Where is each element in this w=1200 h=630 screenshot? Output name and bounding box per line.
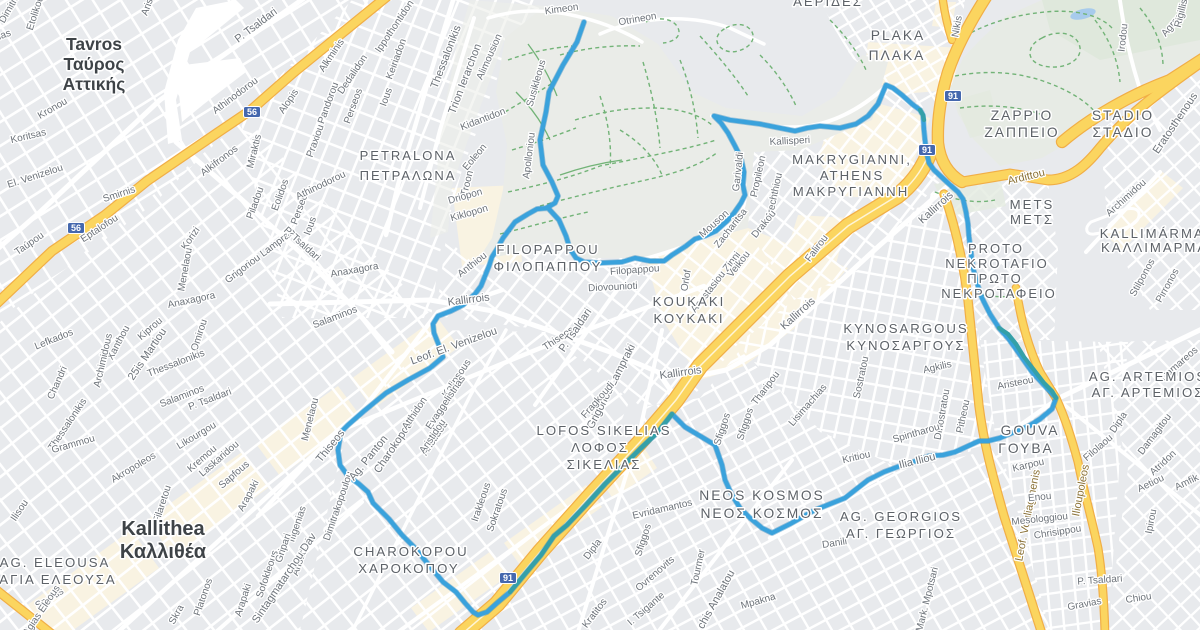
svg-text:ΖΑΠΠΕΙΟ: ΖΑΠΠΕΙΟ <box>984 125 1059 140</box>
svg-text:ΜΑΚΡΥΓΙΑΝΝΗ: ΜΑΚΡΥΓΙΑΝΝΗ <box>793 184 909 199</box>
svg-text:AG. GEORGIOS: AG. GEORGIOS <box>840 509 962 524</box>
svg-text:LOFOS SIKELIAS: LOFOS SIKELIAS <box>536 423 671 438</box>
svg-text:ΑΕΡΙΔΕΣ: ΑΕΡΙΔΕΣ <box>793 0 863 9</box>
svg-text:KOUKAKI: KOUKAKI <box>653 294 726 309</box>
svg-text:AG. ELEOUSA: AG. ELEOUSA <box>0 555 110 570</box>
svg-text:AG. ARTEMIOS: AG. ARTEMIOS <box>1089 369 1200 384</box>
svg-text:ZAPPIO: ZAPPIO <box>991 108 1054 123</box>
svg-text:56: 56 <box>71 223 81 233</box>
svg-text:56: 56 <box>247 107 257 117</box>
svg-text:ΑΓ. ΑΡΤΕΜΙΟΣ: ΑΓ. ΑΡΤΕΜΙΟΣ <box>1092 385 1200 400</box>
svg-text:Ταύρος: Ταύρος <box>64 54 125 74</box>
svg-text:ΝΕΟΣ ΚΟΣΜΟΣ: ΝΕΟΣ ΚΟΣΜΟΣ <box>700 506 823 521</box>
svg-text:91: 91 <box>922 145 932 155</box>
svg-text:KYNOSARGOUS: KYNOSARGOUS <box>843 321 968 336</box>
svg-text:Αττικής: Αττικής <box>63 74 126 94</box>
svg-text:GOUVA: GOUVA <box>1001 423 1060 438</box>
svg-text:ΣΙΚΕΛΙΑΣ: ΣΙΚΕΛΙΑΣ <box>567 457 642 472</box>
svg-text:ΠΛΑΚΑ: ΠΛΑΚΑ <box>869 48 926 63</box>
svg-text:91: 91 <box>503 573 513 583</box>
svg-text:PETRALONA: PETRALONA <box>360 148 457 163</box>
svg-text:PROTO: PROTO <box>968 241 1024 256</box>
svg-text:ΝΕΚΡΟΤΑΦΕΙΟ: ΝΕΚΡΟΤΑΦΕΙΟ <box>941 286 1057 301</box>
svg-text:ΑΓ. ΓΕΩΡΓΙΟΣ: ΑΓ. ΓΕΩΡΓΙΟΣ <box>846 526 956 541</box>
svg-text:ΠΡΩΤΟ: ΠΡΩΤΟ <box>967 271 1023 286</box>
svg-text:ΚΟΥΚΑΚΙ: ΚΟΥΚΑΚΙ <box>653 311 724 326</box>
svg-text:NEOS KOSMOS: NEOS KOSMOS <box>699 488 825 503</box>
svg-text:NEKROTAFIO: NEKROTAFIO <box>945 256 1049 271</box>
svg-text:STADIO: STADIO <box>1092 108 1154 123</box>
svg-text:91: 91 <box>948 91 958 101</box>
svg-text:Kallisperi: Kallisperi <box>769 135 810 148</box>
svg-text:KALLIMÁRMAR: KALLIMÁRMAR <box>1100 226 1200 241</box>
svg-text:ΛΟΦΟΣ: ΛΟΦΟΣ <box>571 440 629 455</box>
svg-text:Kallithea: Kallithea <box>121 518 205 540</box>
svg-text:ΧΑΡΟΚΟΠΟΥ: ΧΑΡΟΚΟΠΟΥ <box>358 561 459 576</box>
svg-text:ΓΟΥΒΑ: ΓΟΥΒΑ <box>998 441 1054 456</box>
svg-text:METS: METS <box>1010 197 1055 212</box>
svg-text:PLAKA: PLAKA <box>871 28 925 43</box>
svg-text:FILOPAPPOU: FILOPAPPOU <box>496 242 599 257</box>
svg-text:CHAROKOPOU: CHAROKOPOU <box>353 544 468 559</box>
svg-text:ΠΕΤΡΑΛΩΝΑ: ΠΕΤΡΑΛΩΝΑ <box>360 168 457 183</box>
svg-text:ΣΤΑΔΙΟ: ΣΤΑΔΙΟ <box>1093 125 1154 140</box>
svg-text:ΜΕΤΣ: ΜΕΤΣ <box>1010 212 1054 227</box>
svg-text:Tavros: Tavros <box>66 34 122 54</box>
svg-text:ΑΓΙΑ ΕΛΕΟΥΣΑ: ΑΓΙΑ ΕΛΕΟΥΣΑ <box>0 572 117 587</box>
svg-text:ATHENS: ATHENS <box>820 168 885 183</box>
svg-text:Καλλιθέα: Καλλιθέα <box>120 541 207 563</box>
svg-text:ΚΑΛΛΙΜΑΡΜΑΡ: ΚΑΛΛΙΜΑΡΜΑΡ <box>1101 240 1200 255</box>
svg-text:ΦΙΛΟΠΑΠΠΟΥ: ΦΙΛΟΠΑΠΠΟΥ <box>494 259 603 274</box>
svg-text:ΚΥΝΟΣΑΡΓΟΥΣ: ΚΥΝΟΣΑΡΓΟΥΣ <box>846 338 965 353</box>
svg-text:MAKRYGIANNI,: MAKRYGIANNI, <box>792 152 912 167</box>
